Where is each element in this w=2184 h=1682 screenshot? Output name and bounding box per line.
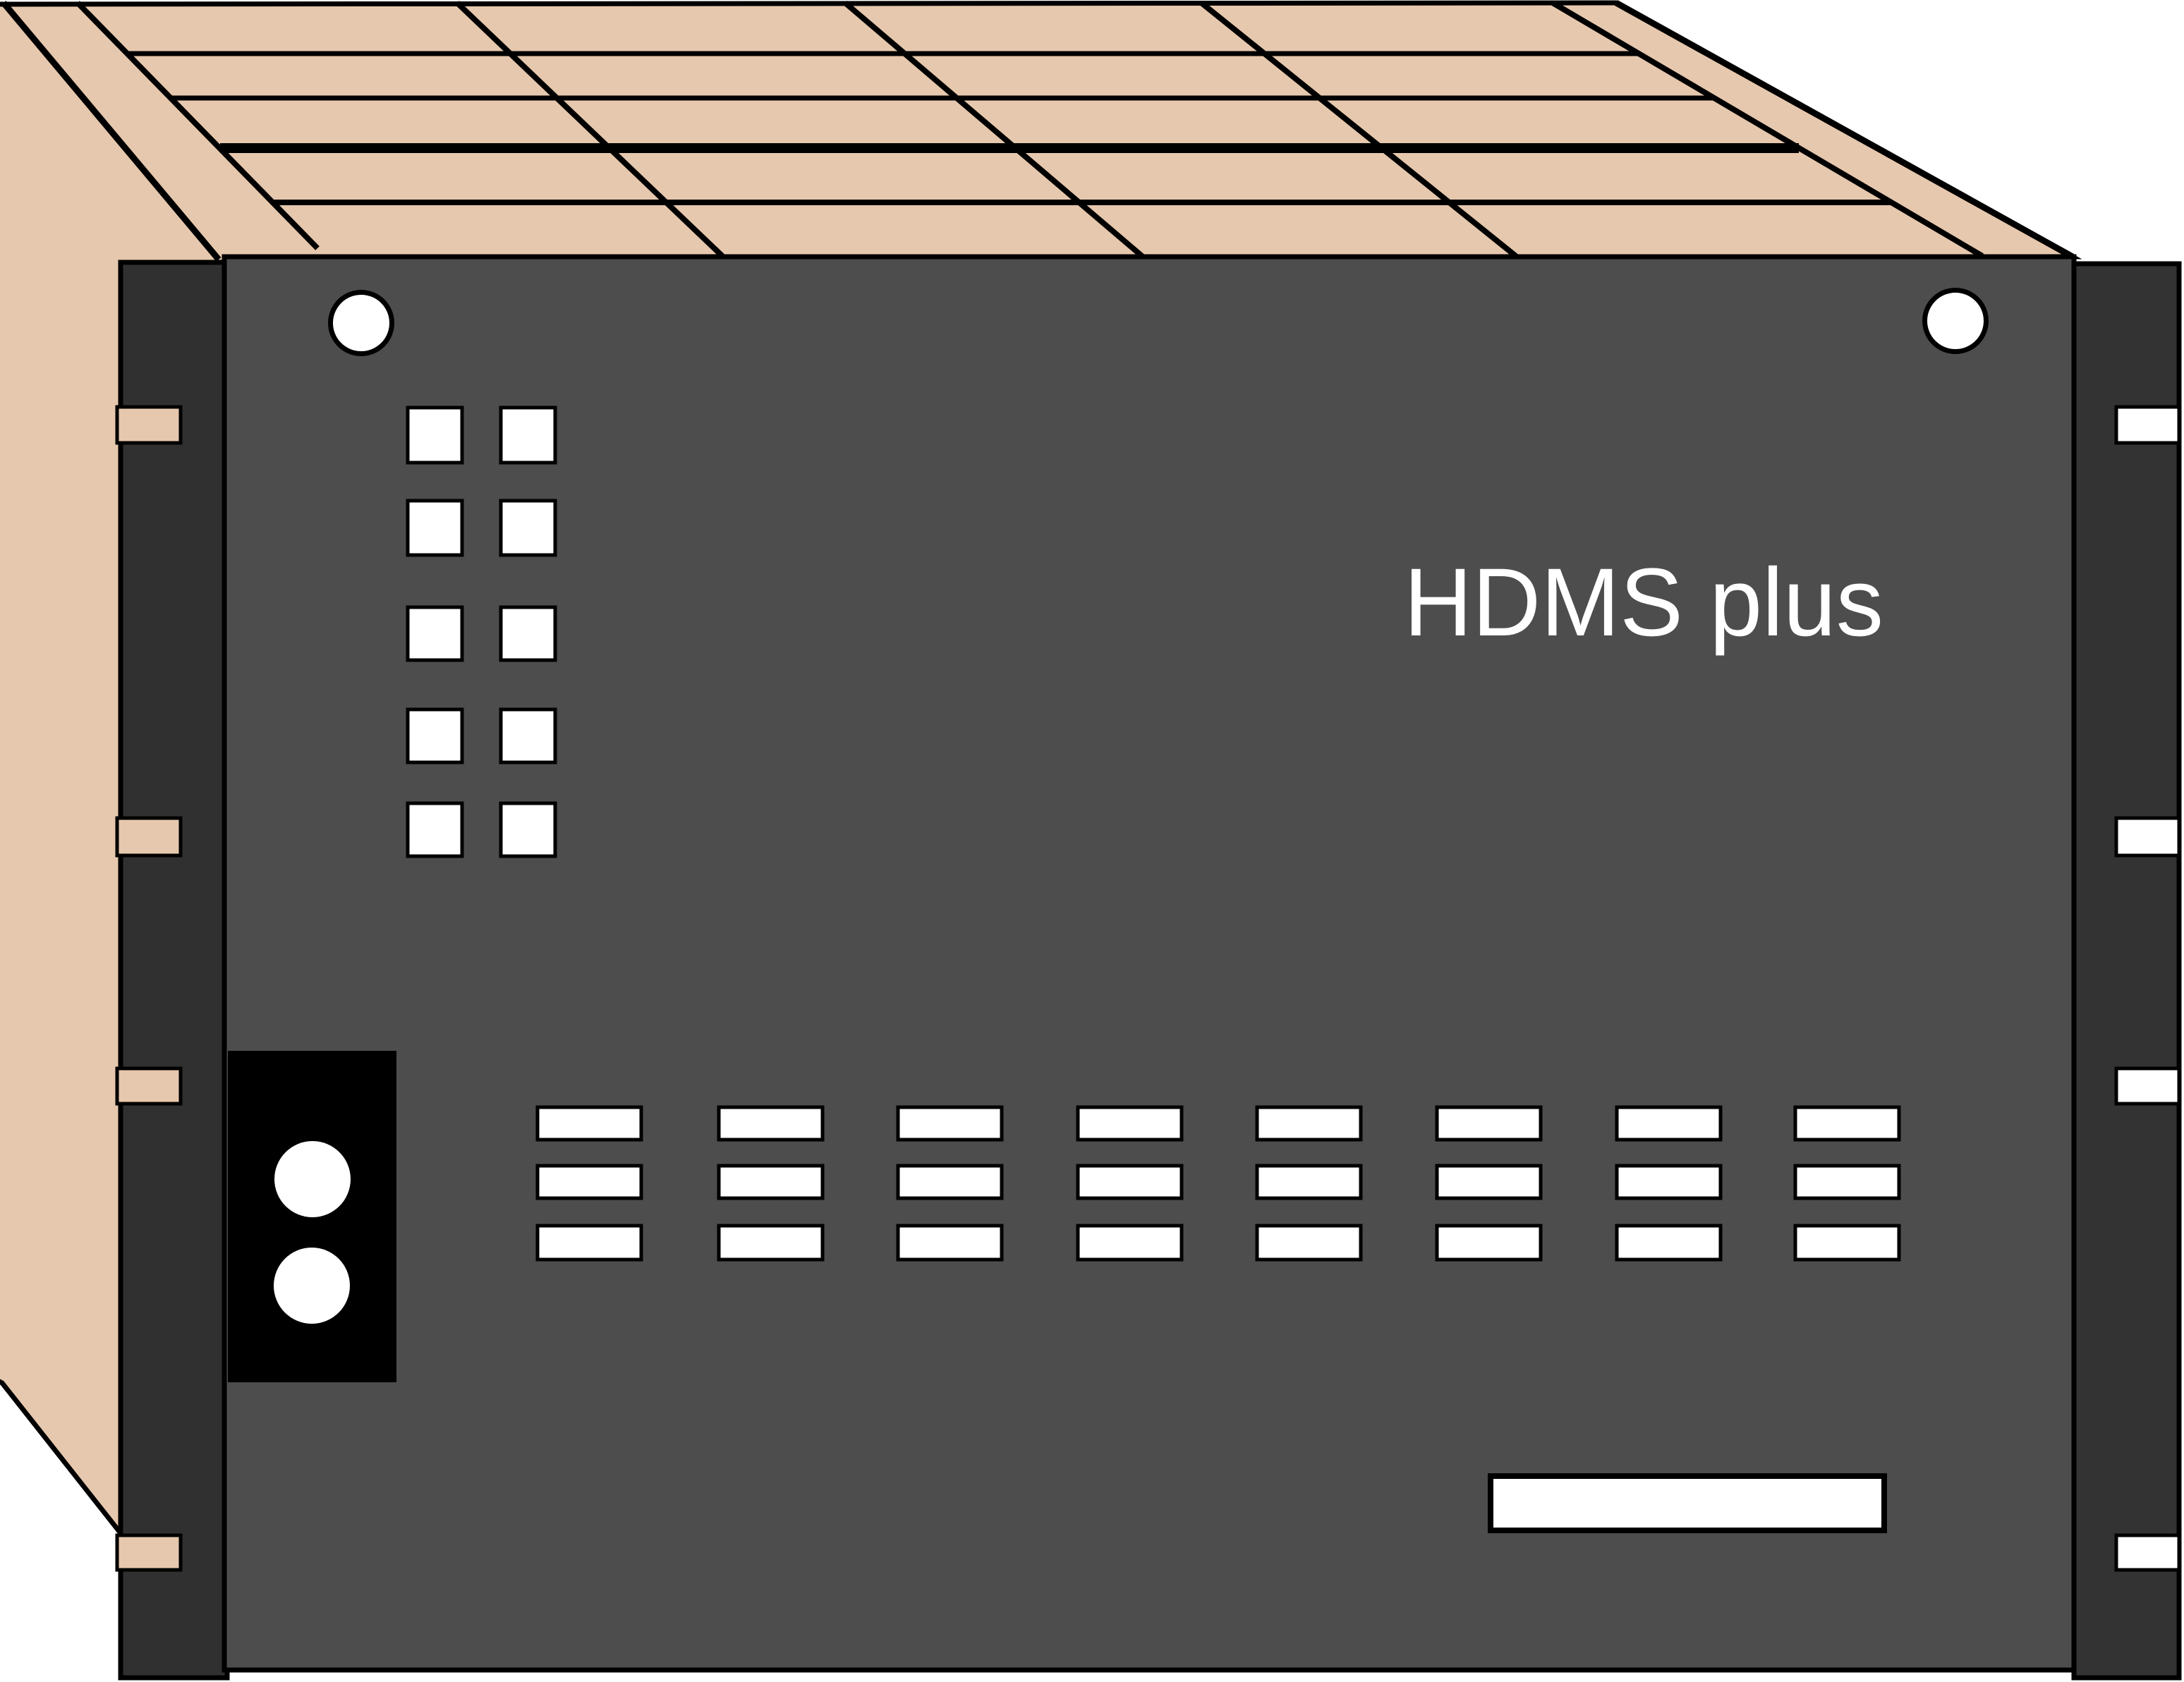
svg-text:HDMS plus: HDMS plus xyxy=(1404,549,1883,657)
